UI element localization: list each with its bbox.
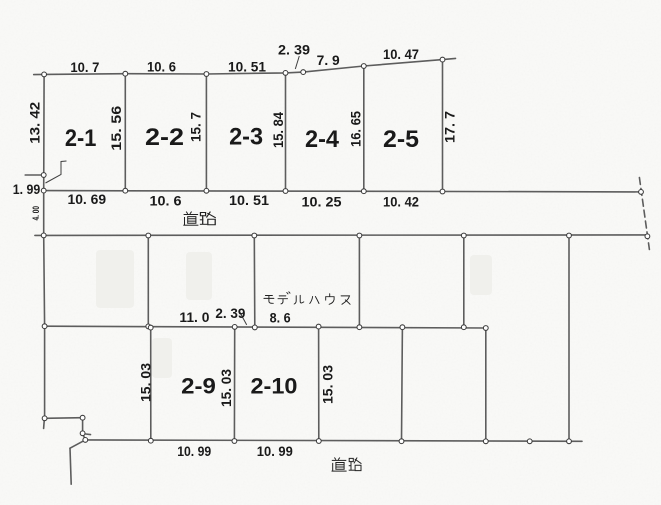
svg-text:10. 6: 10. 6 <box>147 60 176 75</box>
svg-text:17. 7: 17. 7 <box>443 111 458 143</box>
svg-text:15. 56: 15. 56 <box>109 105 124 151</box>
svg-text:2-3: 2-3 <box>229 124 263 151</box>
svg-text:15. 84: 15. 84 <box>271 112 286 148</box>
svg-text:10. 99: 10. 99 <box>257 444 293 459</box>
svg-text:10. 6: 10. 6 <box>150 194 183 209</box>
svg-text:2-5: 2-5 <box>383 126 419 153</box>
svg-text:10. 99: 10. 99 <box>177 444 211 459</box>
svg-text:11. 0: 11. 0 <box>179 310 209 325</box>
svg-text:15. 7: 15. 7 <box>189 112 204 142</box>
svg-text:10. 7: 10. 7 <box>70 60 99 75</box>
svg-text:2-2: 2-2 <box>145 124 184 151</box>
svg-text:7. 9: 7. 9 <box>317 53 340 68</box>
svg-text:2-10: 2-10 <box>251 374 298 399</box>
svg-text:15. 03: 15. 03 <box>321 365 336 404</box>
svg-text:4. 00: 4. 00 <box>31 206 41 221</box>
svg-text:2-9: 2-9 <box>181 374 216 399</box>
svg-text:15. 03: 15. 03 <box>219 369 234 407</box>
svg-text:8. 6: 8. 6 <box>270 310 291 325</box>
svg-text:10. 51: 10. 51 <box>228 60 266 75</box>
svg-text:15. 03: 15. 03 <box>138 363 153 402</box>
svg-text:10. 42: 10. 42 <box>383 195 419 210</box>
svg-text:10. 51: 10. 51 <box>229 193 270 208</box>
svg-text:2. 39: 2. 39 <box>215 306 245 321</box>
svg-text:10. 25: 10. 25 <box>302 195 343 210</box>
svg-text:16. 65: 16. 65 <box>349 111 364 147</box>
svg-text:13. 42: 13. 42 <box>28 102 43 144</box>
svg-text:2. 39: 2. 39 <box>278 43 310 58</box>
svg-text:2-4: 2-4 <box>305 126 340 153</box>
svg-text:2-1: 2-1 <box>65 125 97 152</box>
svg-text:10. 47: 10. 47 <box>383 47 419 62</box>
svg-text:1. 99: 1. 99 <box>13 182 41 197</box>
svg-text:10. 69: 10. 69 <box>68 192 107 207</box>
